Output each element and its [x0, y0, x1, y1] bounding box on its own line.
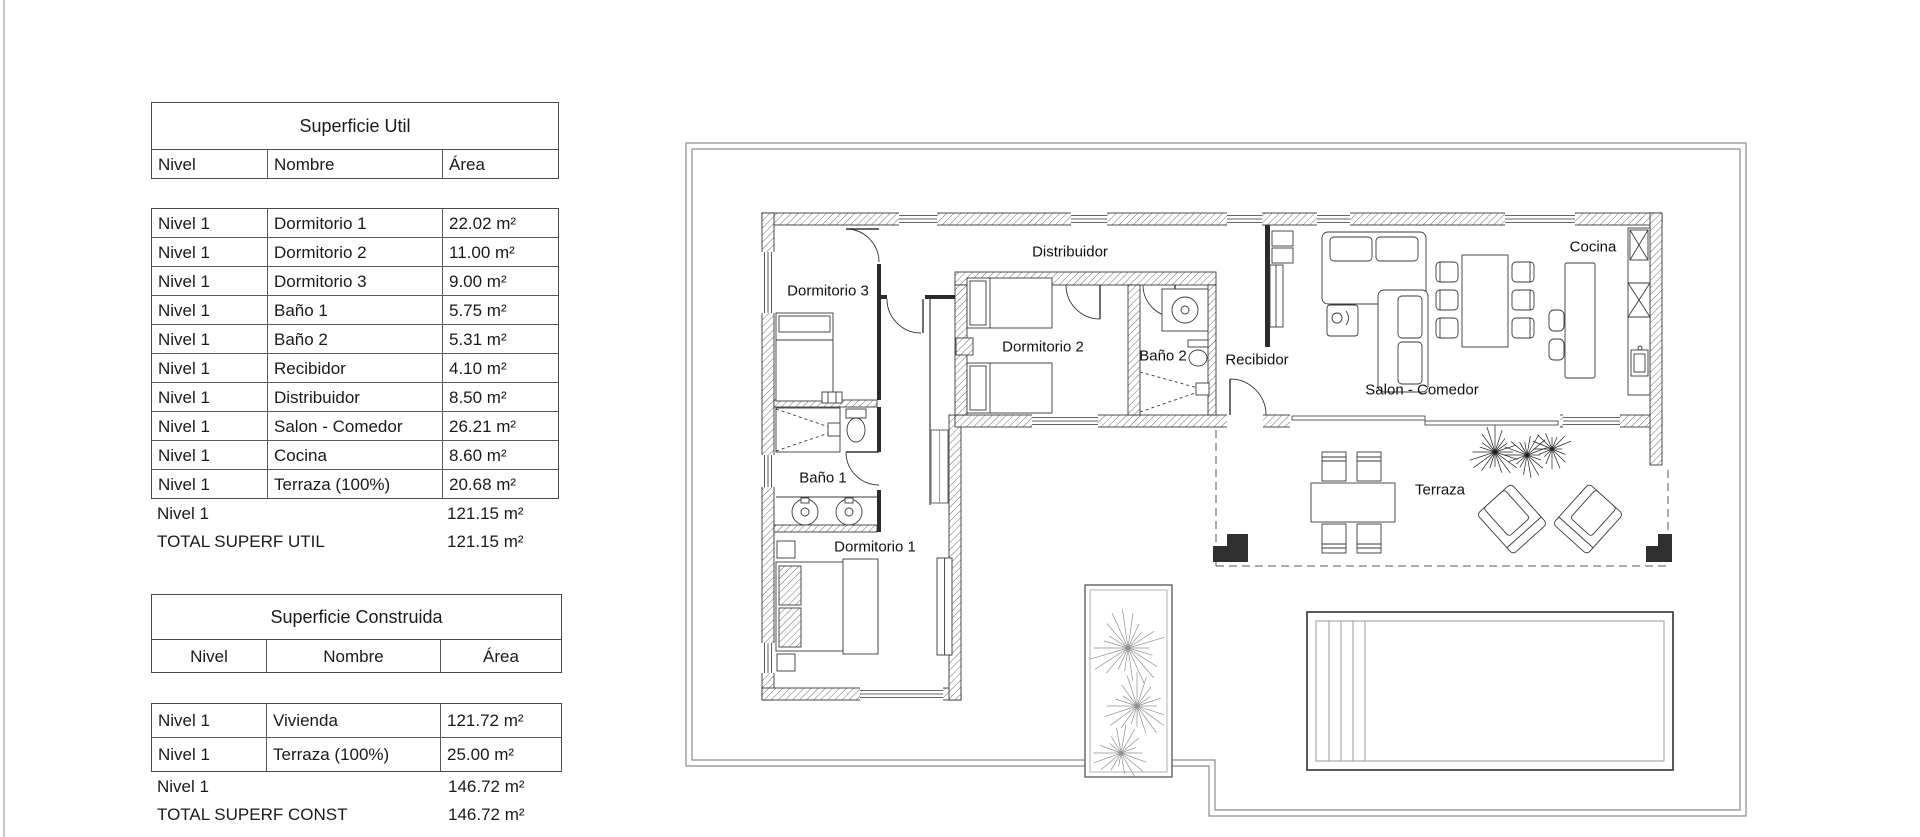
table-row: Nivel 1Baño 15.75 m²	[152, 296, 558, 325]
corner-step	[1646, 534, 1672, 562]
planter	[1085, 585, 1172, 777]
lounge-chair	[1553, 484, 1623, 555]
total-row: TOTAL SUPERF CONST 146.72 m²	[151, 800, 562, 828]
total-row: TOTAL SUPERF UTIL 121.15 m²	[151, 527, 559, 555]
lounge-chair	[1477, 484, 1547, 555]
door-dormitorio3	[846, 229, 879, 262]
superficie-construida-table: Superficie Construida Nivel Nombre Área …	[151, 594, 562, 828]
table-row: Nivel 1Distribuidor8.50 m²	[152, 383, 558, 412]
plant-icon	[1504, 435, 1547, 478]
table-row: Nivel 1Dormitorio 211.00 m²	[152, 238, 558, 267]
sliding-door	[1290, 414, 1560, 428]
toilet-bano1	[846, 409, 866, 442]
pool	[1307, 612, 1673, 770]
kitchen-counter	[1628, 228, 1650, 395]
page: Dormitorio 3 Distribuidor Dormitorio 2 B…	[0, 0, 1920, 837]
room-label-bano2: Baño 2	[1139, 348, 1187, 365]
table-row: Nivel 1Dormitorio 122.02 m²	[152, 209, 558, 238]
wardrobe-dormitorio1	[937, 558, 952, 655]
side-table	[1327, 305, 1358, 336]
room-label-recibidor: Recibidor	[1225, 352, 1288, 369]
toilet-bano2	[1188, 340, 1208, 366]
table-row: Nivel 1Baño 25.31 m²	[152, 325, 558, 354]
table-row: Nivel 1Recibidor4.10 m²	[152, 354, 558, 383]
door-dormitorio2	[1066, 285, 1100, 319]
dining-table	[1436, 255, 1534, 347]
column-header: Nivel	[152, 150, 268, 178]
room-label-distribuidor: Distribuidor	[1032, 244, 1108, 261]
shower-bano1	[776, 408, 840, 452]
column-header: Área	[443, 150, 558, 178]
table-header: Nivel Nombre Área	[151, 149, 559, 179]
bed-dormitorio3	[776, 313, 842, 403]
superficie-util-table: Superficie Util Nivel Nombre Área Nivel …	[151, 102, 559, 555]
door-bano1	[846, 452, 879, 485]
table-row: Nivel 1Cocina8.60 m²	[152, 441, 558, 470]
bed-dormitorio1	[776, 541, 878, 671]
column-header: Nivel	[152, 640, 267, 672]
room-label-bano1: Baño 1	[799, 470, 847, 487]
sink-bano2	[1162, 289, 1208, 331]
column-header: Área	[441, 640, 561, 672]
column-header: Nombre	[267, 640, 441, 672]
subtotal-row: Nivel 1 146.72 m²	[151, 772, 562, 800]
table-row: Nivel 1Terraza (100%)20.68 m²	[152, 470, 558, 498]
room-label-dormitorio2: Dormitorio 2	[1002, 339, 1084, 356]
table-row: Nivel 1Terraza (100%)25.00 m²	[152, 738, 561, 771]
shower-bano2	[1140, 372, 1198, 412]
room-label-cocina: Cocina	[1570, 239, 1617, 256]
corner-step	[1213, 534, 1248, 562]
table-row: Nivel 1Salon - Comedor26.21 m²	[152, 412, 558, 441]
sinks-bano1	[776, 497, 877, 525]
table-title: Superficie Util	[151, 102, 559, 150]
column-header: Nombre	[268, 150, 443, 178]
room-label-terraza: Terraza	[1415, 482, 1465, 499]
room-label-salon-comedor: Salon - Comedor	[1365, 382, 1478, 399]
door-entrance	[1230, 379, 1266, 415]
table-body: Nivel 1Vivienda121.72 m² Nivel 1Terraza …	[151, 703, 562, 772]
table-title: Superficie Construida	[151, 594, 562, 640]
hall-cabinet	[1270, 231, 1293, 327]
subtotal-row: Nivel 1 121.15 m²	[151, 499, 559, 527]
door-corridor	[887, 299, 923, 333]
room-label-dormitorio3: Dormitorio 3	[787, 283, 869, 300]
table-header: Nivel Nombre Área	[151, 639, 562, 673]
table-row: Nivel 1Dormitorio 39.00 m²	[152, 267, 558, 296]
terrace-table	[1311, 452, 1395, 553]
room-label-dormitorio1: Dormitorio 1	[834, 539, 916, 556]
table-body: Nivel 1Dormitorio 122.02 m² Nivel 1Dormi…	[151, 208, 559, 499]
table-row: Nivel 1Vivienda121.72 m²	[152, 704, 561, 738]
kitchen-island	[1549, 263, 1595, 378]
